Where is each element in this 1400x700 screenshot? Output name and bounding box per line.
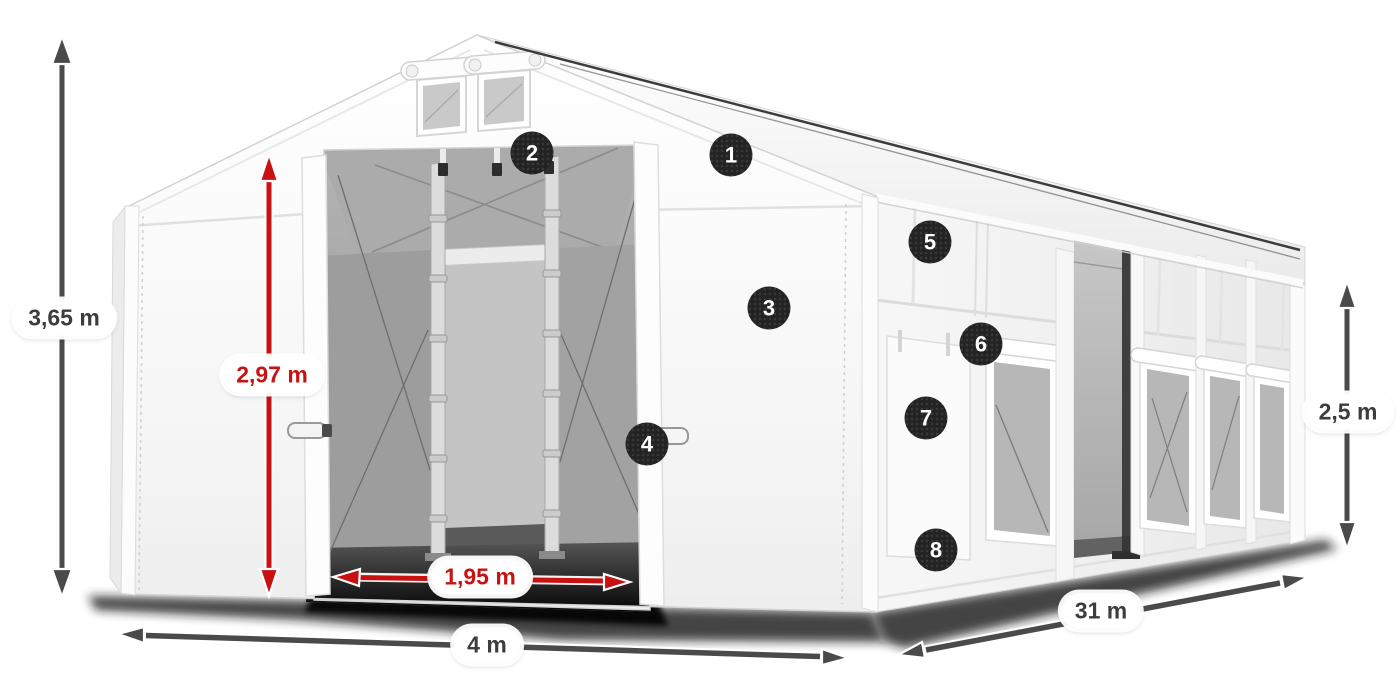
side-divider-post — [1056, 248, 1074, 582]
front-right-corner-roll — [862, 194, 878, 612]
door-handle-left — [288, 423, 332, 438]
tent-illustration — [0, 0, 1400, 700]
callout-badge-3: 3 — [748, 287, 791, 330]
tent-dimension-diagram: 1 2 3 4 5 6 7 8 3,65 m 2,97 m 1,95 m 4 m… — [0, 0, 1400, 700]
callout-badge-2: 2 — [511, 132, 554, 175]
callout-badge-6: 6 — [960, 323, 1003, 366]
dim-label-side-height: 2,5 m — [1306, 395, 1391, 430]
rear-corner-roll — [1290, 282, 1305, 544]
dim-label-door-width: 1,95 m — [431, 560, 529, 595]
callout-badge-4: 4 — [626, 423, 669, 466]
callout-badge-7: 7 — [905, 397, 948, 440]
dim-label-front-width: 4 m — [454, 628, 520, 663]
callout-badge-1: 1 — [710, 134, 753, 177]
side-open-passage — [1074, 236, 1140, 559]
dim-label-door-height: 2,97 m — [223, 358, 321, 393]
doorway-interior — [306, 138, 654, 612]
dim-label-total-height: 3,65 m — [15, 301, 113, 336]
dim-label-length: 31 m — [1062, 594, 1140, 629]
callout-badge-8: 8 — [915, 529, 958, 572]
side-window-2 — [1131, 348, 1205, 534]
callout-badge-5: 5 — [909, 221, 952, 264]
side-door-flap — [887, 330, 970, 560]
door-jamb-right — [634, 142, 664, 606]
inner-doorway-opening — [445, 252, 545, 554]
